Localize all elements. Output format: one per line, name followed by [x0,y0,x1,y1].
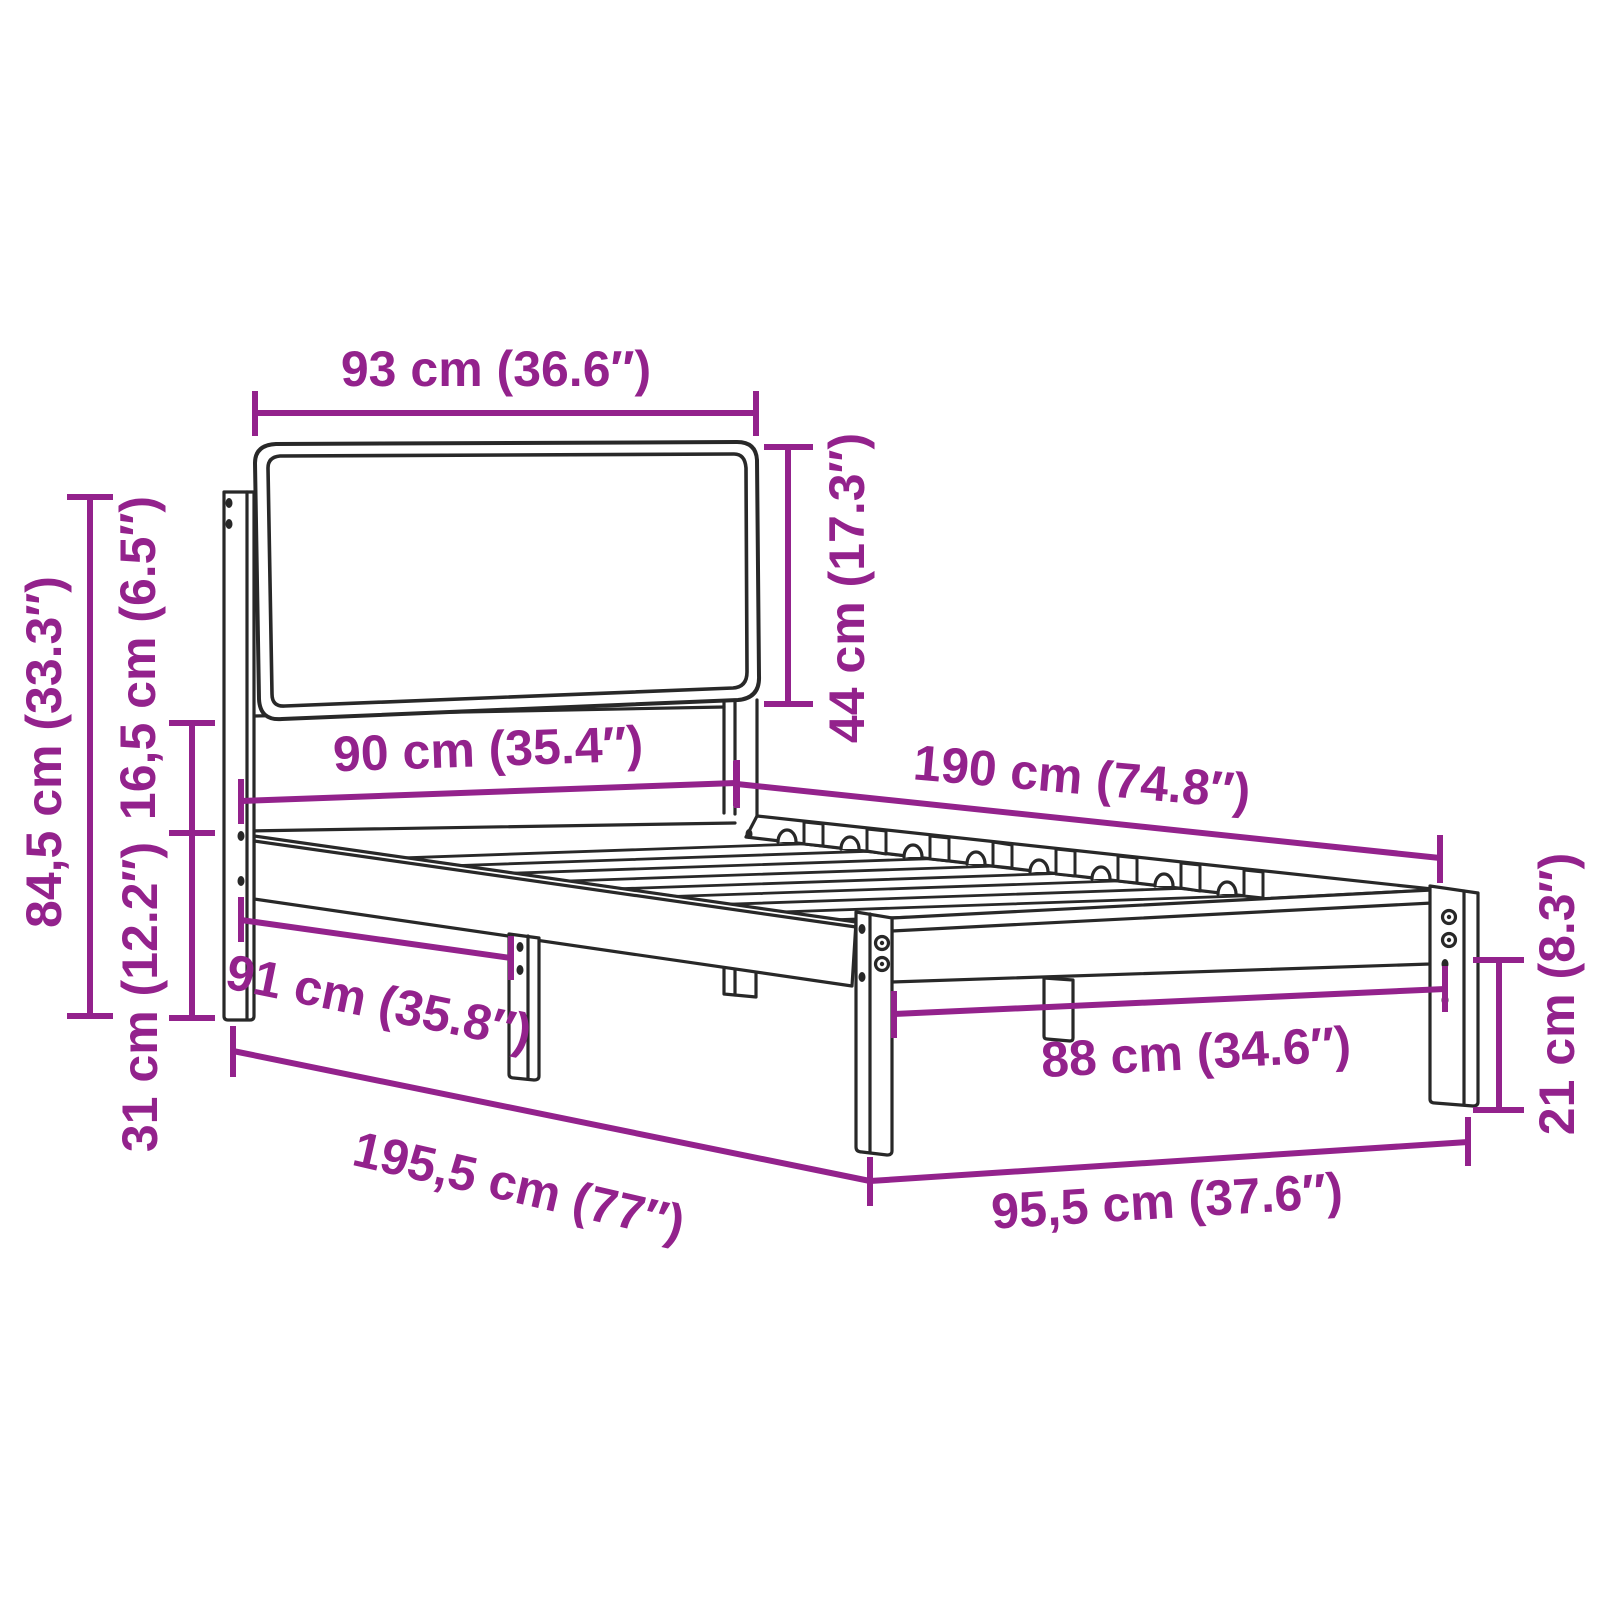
svg-text:84,5 cm (33.3″): 84,5 cm (33.3″) [16,576,72,928]
svg-text:21 cm (8.3″): 21 cm (8.3″) [1529,853,1585,1135]
svg-text:44 cm (17.3″): 44 cm (17.3″) [819,433,875,743]
svg-text:16,5 cm (6.5″): 16,5 cm (6.5″) [110,496,166,820]
svg-text:93 cm (36.6″): 93 cm (36.6″) [341,341,651,397]
svg-text:90 cm (35.4″): 90 cm (35.4″) [332,716,644,783]
svg-text:31 cm (12.2″): 31 cm (12.2″) [112,842,168,1152]
